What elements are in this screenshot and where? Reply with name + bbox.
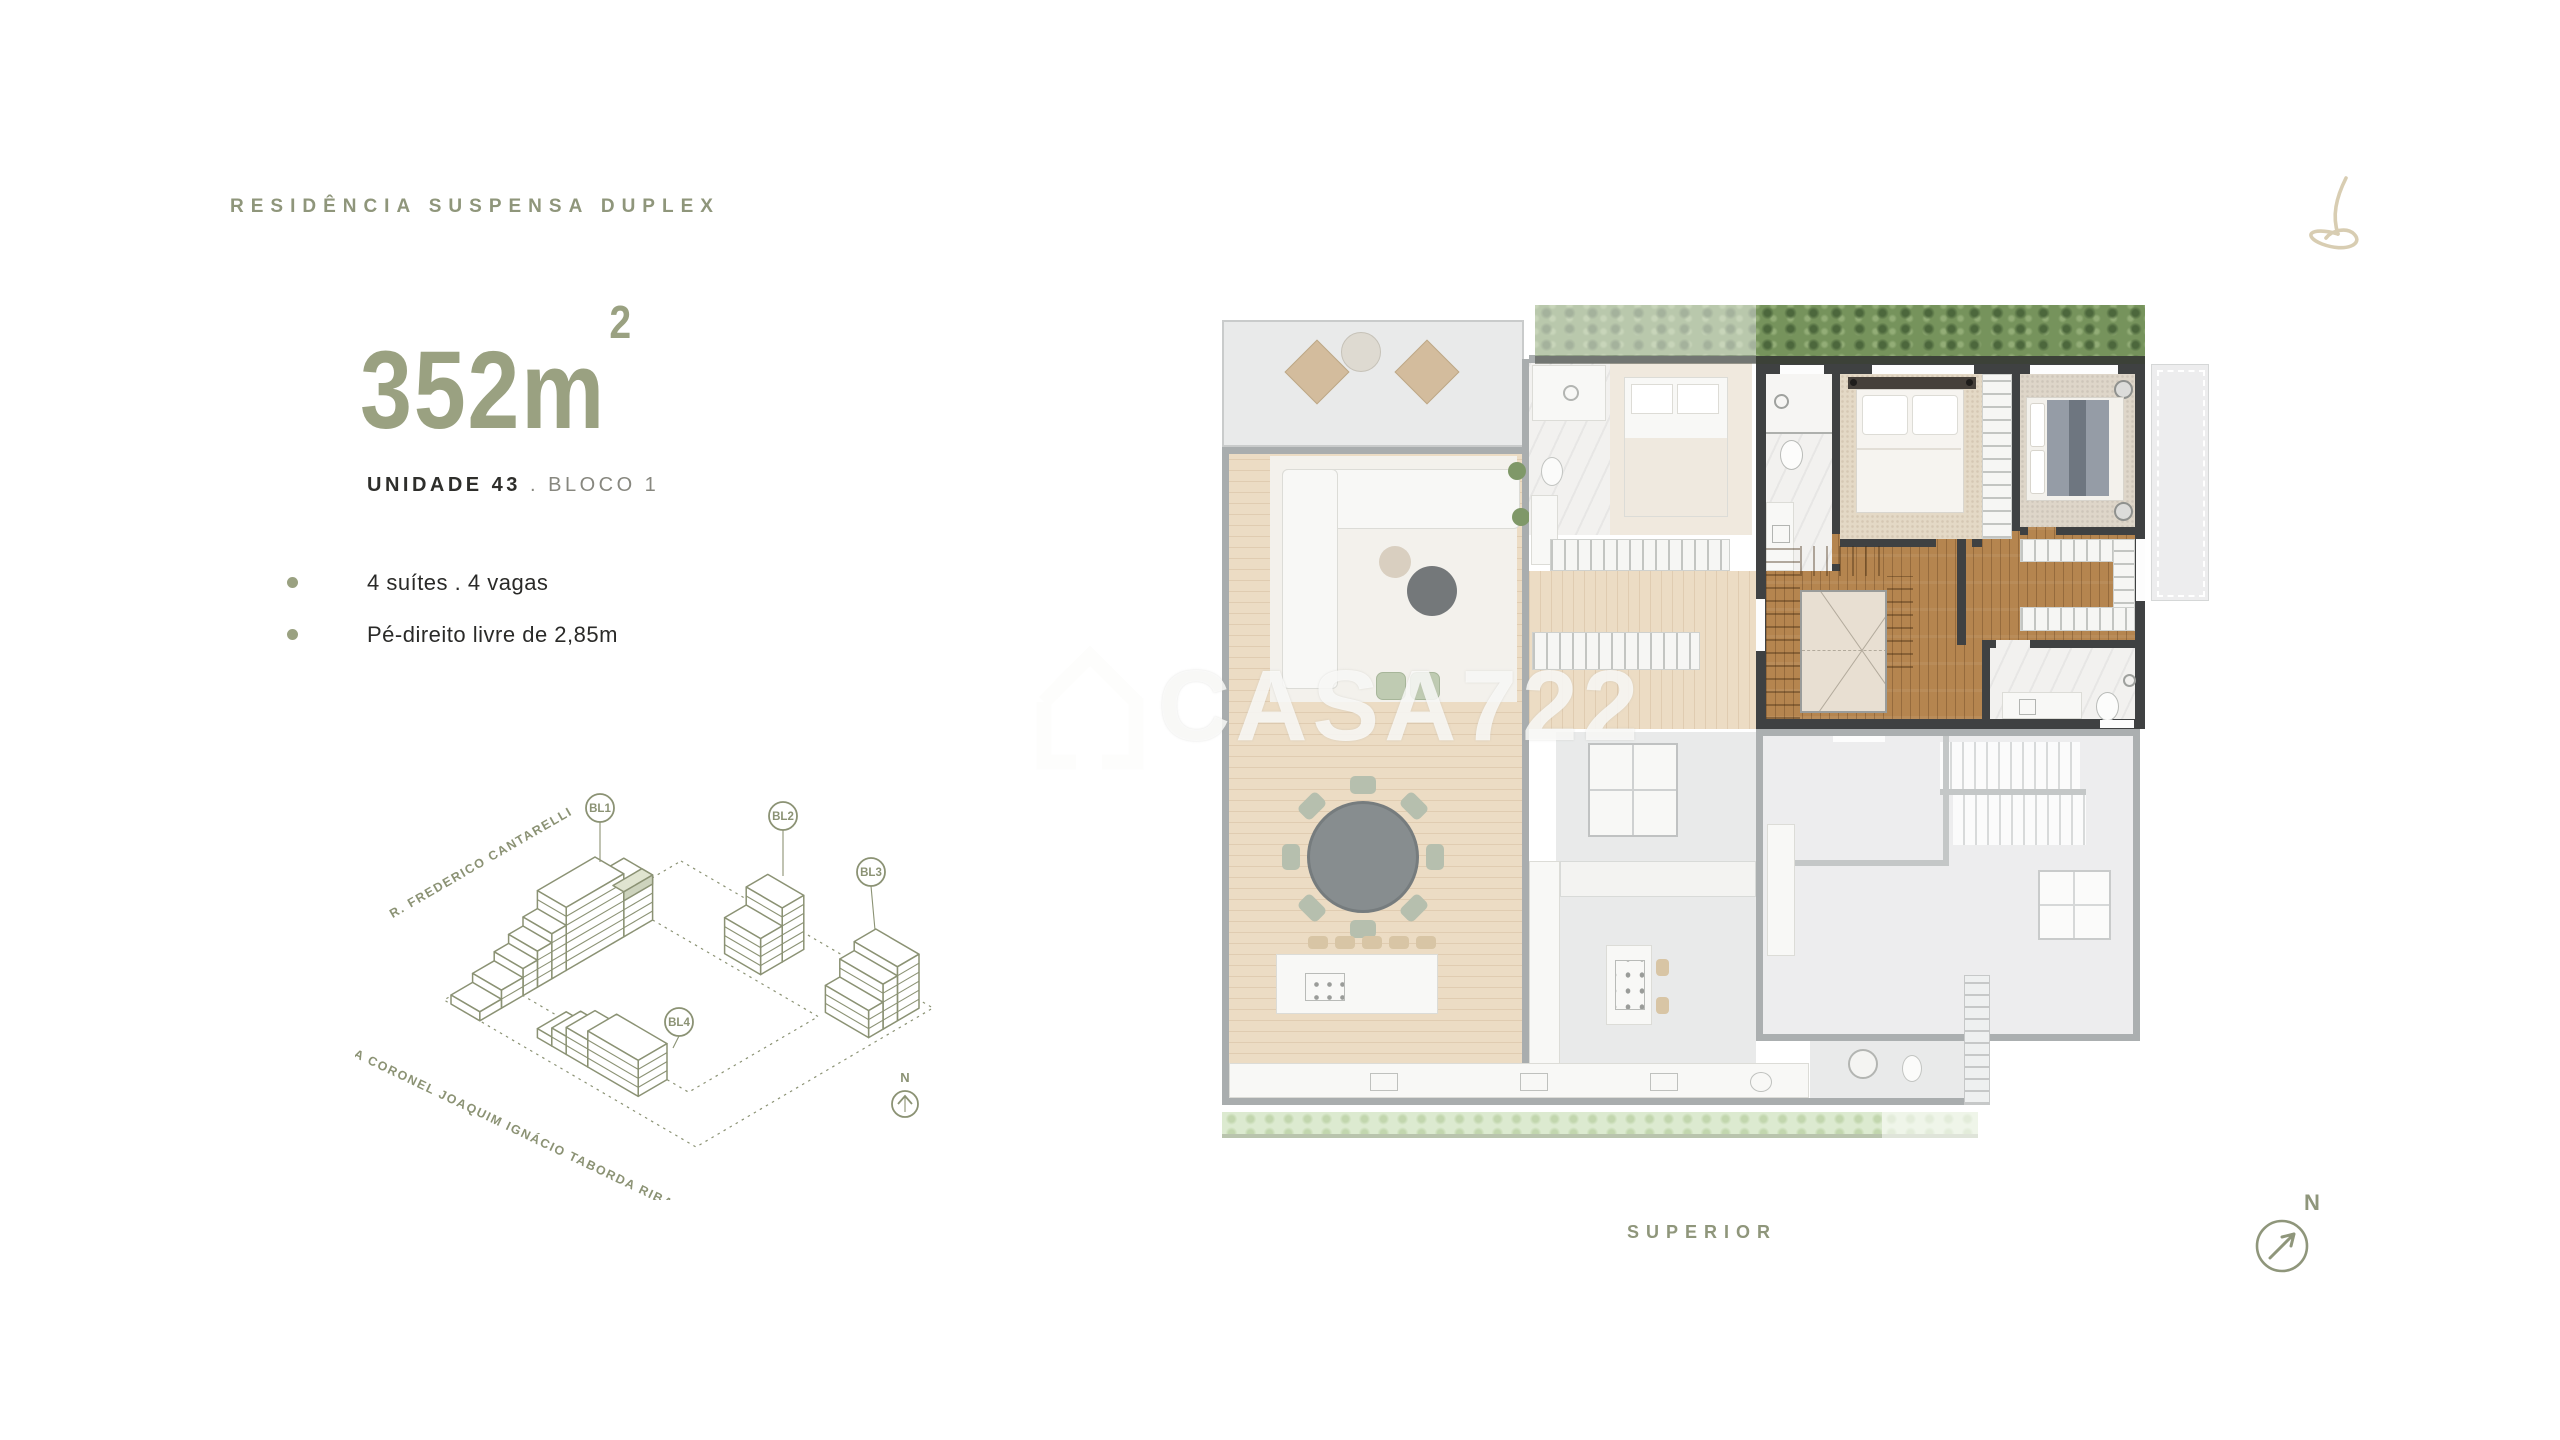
fp-shower-head <box>1563 385 1579 401</box>
hl-bathroom <box>1766 374 1832 571</box>
fp-toilet <box>1902 1055 1922 1082</box>
fp-cabinets <box>1560 861 1756 897</box>
fp-coffee-table <box>1407 566 1457 616</box>
fp-dining-chair <box>1398 790 1429 821</box>
hl-lamp <box>1850 379 1857 386</box>
fp-pillow <box>1631 384 1673 414</box>
hl-shower-head <box>1774 394 1789 409</box>
hl-window <box>2030 365 2118 374</box>
fp-kitchen-island <box>1606 945 1652 1025</box>
hl-bed-1 <box>1856 389 1964 513</box>
fp-lobby <box>1556 732 1756 861</box>
hl-vanity <box>2002 692 2082 719</box>
fp-lounge-chair <box>1394 339 1459 404</box>
fp-stool <box>1308 936 1328 949</box>
hl-void-diagonal <box>1816 590 1887 713</box>
unit-block: BLOCO 1 <box>548 474 659 496</box>
site-buildings <box>451 857 919 1096</box>
fp-stairs-faded <box>1953 795 2086 845</box>
fp-stool <box>1362 936 1382 949</box>
feature-item: 4 suítes . 4 vagas <box>285 570 705 596</box>
fp-skylight <box>2038 870 2111 940</box>
hl-window <box>1872 365 1974 374</box>
house-watermark-icon <box>1028 640 1148 772</box>
fp-grass-top-faded <box>1535 305 1756 364</box>
level-label: SUPERIOR <box>1627 1222 1777 1243</box>
fp-lounge-chair <box>1284 339 1349 404</box>
fp-core-faded <box>1756 729 2140 1041</box>
fp-bathroom-faded <box>1810 1041 1970 1098</box>
svg-text:BL1: BL1 <box>589 803 611 815</box>
fp-door-mark <box>1833 736 1885 742</box>
fp-wall <box>1222 447 1229 1105</box>
unit-separator: . <box>530 474 539 496</box>
fp-sink <box>1650 1073 1678 1091</box>
fp-wall <box>1777 860 1943 866</box>
fp-wardrobe <box>1550 539 1730 571</box>
hl-window <box>1780 365 1824 374</box>
hl-wall <box>2030 640 2135 648</box>
hl-bathroom-2 <box>1990 640 2135 719</box>
compass-letter: N <box>2304 1190 2320 1215</box>
hl-window <box>2100 720 2134 728</box>
brand-flourish-icon <box>2292 172 2376 264</box>
fp-plant <box>1512 508 1530 526</box>
feature-item: Pé-direito livre de 2,85m <box>285 622 705 648</box>
area-superscript: 2 <box>609 296 632 348</box>
fp-plant <box>1508 462 1526 480</box>
fp-toilet <box>1541 457 1563 486</box>
feature-text: Pé-direito livre de 2,85m <box>367 622 618 647</box>
hl-dresser <box>1982 374 2012 539</box>
hl-spotlight <box>2114 502 2133 521</box>
bullet-dot <box>287 577 298 588</box>
fp-living-room <box>1229 454 1522 702</box>
fp-terrace <box>1222 320 1524 447</box>
unit-name: UNIDADE 43 <box>367 474 521 496</box>
fp-elevator-line <box>1590 789 1676 791</box>
feature-text: 4 suítes . 4 vagas <box>367 570 548 595</box>
unit-identifier: UNIDADE 43 . BLOCO 1 <box>367 474 659 497</box>
fp-service-stairs <box>1964 975 1990 1105</box>
fp-wall <box>1222 447 1526 454</box>
floorplan-superior <box>1220 299 2225 1140</box>
fp-duvet <box>1625 438 1727 516</box>
site-isometric-diagram: BL1BL2BL3BL4 R. FREDERICO CANTARELLI RUA… <box>355 770 945 1200</box>
fp-coffee-table <box>1379 546 1411 578</box>
fp-dining-chair <box>1282 844 1300 870</box>
fp-armchair <box>1410 672 1440 700</box>
hl-void-dash <box>1802 650 1887 651</box>
hl-unit-section <box>1756 364 2145 729</box>
fp-stool <box>1389 936 1409 949</box>
fp-garden-strip <box>1222 1112 1882 1138</box>
hl-bedroom-1 <box>1840 374 1982 539</box>
fp-elevator <box>1588 743 1678 837</box>
fp-dining-chair <box>1426 844 1444 870</box>
svg-text:N: N <box>900 1070 909 1085</box>
fp-basin <box>1750 1072 1772 1092</box>
svg-text:BL2: BL2 <box>772 811 794 823</box>
fp-stool <box>1656 997 1669 1014</box>
hl-stairs <box>1887 576 1913 668</box>
diagram-north-icon: N <box>892 1070 918 1117</box>
fp-stairs-faded <box>1940 742 2080 789</box>
hl-sink <box>2019 699 2036 715</box>
hl-pillow <box>1862 395 1908 435</box>
fp-kitchen-island <box>1276 954 1438 1014</box>
hl-lamp <box>1966 379 1973 386</box>
fp-bathroom-faded <box>1529 363 1610 535</box>
hl-wall <box>1957 539 1966 645</box>
hl-throw <box>2069 400 2086 496</box>
hl-closet <box>2020 607 2135 631</box>
fp-counter <box>1229 1063 1809 1098</box>
fp-kitchen-faded <box>1529 861 1756 1081</box>
fp-bed-faded <box>1624 377 1728 517</box>
hl-void <box>1800 590 1887 713</box>
fp-cooktop <box>1305 973 1345 1001</box>
hl-wall <box>2056 527 2135 535</box>
page-title: RESIDÊNCIA SUSPENSA DUPLEX <box>230 196 720 218</box>
hl-wall <box>2012 374 2020 531</box>
hl-shower-head <box>2123 674 2136 687</box>
fp-sink <box>1370 1073 1398 1091</box>
hl-wall <box>1990 640 1996 648</box>
bullet-dot <box>287 629 298 640</box>
fp-wall <box>1222 1098 1980 1105</box>
hl-wall <box>1832 374 1840 534</box>
fp-terrace-dash <box>2157 370 2205 597</box>
fp-garden-strip <box>1882 1112 1978 1138</box>
area-unit: m <box>521 329 606 452</box>
hl-wall <box>2020 527 2028 535</box>
hl-toilet <box>1780 440 1803 470</box>
hl-pillow <box>2030 450 2045 494</box>
fp-dining-chair <box>1398 892 1429 923</box>
fp-skylight-line <box>2040 904 2109 906</box>
fp-dining-room <box>1229 702 1522 1098</box>
fp-terrace-right <box>2151 364 2209 601</box>
fp-grass-top <box>1756 305 2145 364</box>
fp-dining-chair <box>1296 892 1327 923</box>
fp-stool <box>1416 936 1436 949</box>
fp-dining-chair <box>1350 776 1376 794</box>
feature-list: 4 suítes . 4 vagas Pé-direito livre de 2… <box>285 570 705 674</box>
fp-pillow <box>1677 384 1719 414</box>
unit-area: 352m2 <box>360 336 629 446</box>
area-value: 352 <box>360 329 521 452</box>
fp-wall <box>1943 736 1949 866</box>
fp-cooktop <box>1615 960 1645 1010</box>
fp-stool <box>1656 959 1669 976</box>
fp-dining-table <box>1307 801 1419 913</box>
north-compass-icon: N <box>2240 1176 2350 1286</box>
hl-stairs <box>1800 546 1887 576</box>
hl-void-diagonal <box>1816 590 1887 713</box>
fp-wardrobe <box>1532 632 1700 670</box>
fp-bedroom-faded <box>1610 363 1752 535</box>
hl-toilet <box>2096 692 2119 721</box>
fp-shower-head <box>1848 1049 1878 1079</box>
hl-pillow <box>1912 395 1958 435</box>
hl-stairs <box>1766 546 1800 719</box>
hl-window <box>2136 539 2145 601</box>
hl-wall <box>1972 539 1982 547</box>
hl-headboard <box>1848 377 1976 389</box>
hl-window <box>1756 599 1765 651</box>
svg-text:BL3: BL3 <box>860 867 882 879</box>
hl-wall <box>1982 640 1990 719</box>
svg-text:BL4: BL4 <box>668 1017 690 1029</box>
fp-closet-faded <box>1767 824 1795 956</box>
fp-sofa <box>1282 469 1338 689</box>
hl-bed-2 <box>2026 397 2124 501</box>
fp-stool <box>1335 936 1355 949</box>
fp-side-table <box>1341 332 1381 372</box>
hl-duvet-fold <box>1857 448 1961 450</box>
fp-sink <box>1520 1073 1548 1091</box>
fp-counter <box>1529 861 1560 1081</box>
hl-pillow <box>2030 403 2045 447</box>
hl-bedroom-2 <box>2020 374 2135 527</box>
fp-armchair <box>1376 672 1406 700</box>
fp-hall-faded <box>1529 571 1756 729</box>
hl-sink <box>1772 525 1790 543</box>
brochure-page: RESIDÊNCIA SUSPENSA DUPLEX 352m2 UNIDADE… <box>0 0 2560 1440</box>
